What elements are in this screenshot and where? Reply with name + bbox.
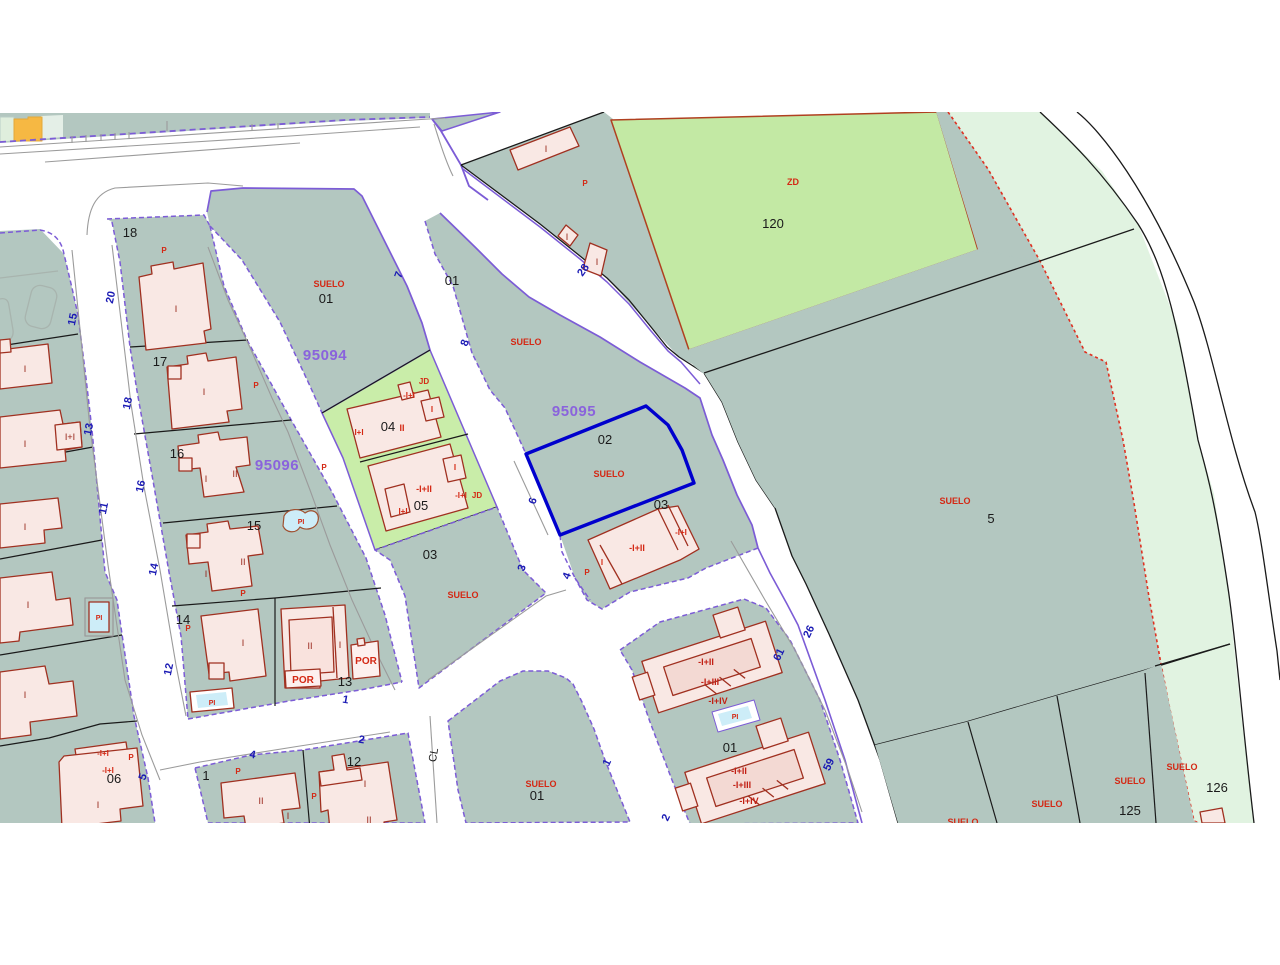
svg-text:01: 01: [445, 273, 459, 288]
svg-text:P: P: [185, 624, 191, 633]
svg-text:I: I: [454, 463, 456, 472]
svg-text:-I+I: -I+I: [102, 766, 114, 775]
svg-text:04: 04: [381, 419, 395, 434]
svg-text:03: 03: [654, 497, 668, 512]
svg-text:POR: POR: [355, 656, 377, 667]
svg-text:P: P: [161, 246, 167, 255]
svg-text:I: I: [24, 364, 27, 374]
svg-text:SUELO: SUELO: [1031, 799, 1062, 809]
svg-text:02: 02: [598, 432, 612, 447]
svg-text:-I+IV: -I+IV: [739, 796, 758, 806]
svg-text:SUELO: SUELO: [313, 279, 344, 289]
svg-text:P: P: [582, 179, 588, 188]
svg-text:PI: PI: [209, 700, 216, 707]
svg-text:P: P: [253, 381, 259, 390]
svg-text:I: I: [24, 690, 27, 700]
svg-text:13: 13: [338, 674, 352, 689]
svg-text:I: I: [97, 800, 100, 810]
svg-text:PI: PI: [298, 519, 305, 526]
svg-text:03: 03: [423, 547, 437, 562]
svg-text:120: 120: [762, 216, 784, 231]
svg-text:I: I: [287, 811, 290, 821]
svg-text:17: 17: [153, 354, 167, 369]
svg-text:-I+II: -I+II: [731, 766, 747, 776]
svg-text:II: II: [399, 423, 404, 433]
svg-text:-I+IV: -I+IV: [708, 696, 727, 706]
svg-text:12: 12: [347, 754, 361, 769]
svg-text:11: 11: [97, 501, 111, 515]
svg-text:P: P: [128, 753, 134, 762]
svg-text:SUELO: SUELO: [1114, 776, 1145, 786]
svg-text:-I+I: -I+I: [675, 528, 687, 537]
svg-text:95096: 95096: [255, 457, 299, 474]
svg-text:JD: JD: [472, 491, 482, 500]
svg-text:I: I: [24, 439, 27, 449]
svg-text:-I+III: -I+III: [733, 780, 751, 790]
svg-text:1: 1: [202, 768, 209, 783]
svg-text:12: 12: [162, 662, 176, 676]
svg-text:5: 5: [987, 511, 994, 526]
svg-text:16: 16: [170, 446, 184, 461]
svg-text:01: 01: [530, 788, 544, 803]
svg-text:I: I: [545, 144, 548, 154]
svg-text:18: 18: [121, 396, 135, 410]
svg-text:SUELO: SUELO: [510, 337, 541, 347]
svg-text:I: I: [175, 304, 178, 314]
svg-text:I+I: I+I: [354, 428, 363, 437]
svg-text:I: I: [596, 257, 599, 267]
svg-text:II: II: [232, 469, 237, 479]
svg-text:I: I: [205, 569, 208, 579]
svg-text:I: I: [24, 522, 27, 532]
svg-text:I: I: [431, 405, 433, 414]
svg-text:125: 125: [1119, 803, 1141, 818]
svg-text:I+I: I+I: [398, 507, 407, 516]
svg-text:18: 18: [123, 225, 137, 240]
svg-text:-I+I: -I+I: [455, 491, 467, 500]
svg-text:95094: 95094: [303, 347, 347, 364]
svg-text:01: 01: [723, 740, 737, 755]
svg-text:05: 05: [414, 498, 428, 513]
svg-text:01: 01: [319, 291, 333, 306]
svg-text:95095: 95095: [552, 403, 596, 420]
svg-text:P: P: [584, 568, 590, 577]
svg-text:PI: PI: [732, 714, 739, 721]
svg-text:SUELO: SUELO: [1166, 762, 1197, 772]
svg-text:I: I: [339, 640, 342, 650]
svg-text:I: I: [566, 232, 569, 242]
svg-text:15: 15: [66, 312, 80, 326]
svg-text:PI: PI: [96, 615, 103, 622]
svg-text:CL: CL: [427, 747, 441, 763]
svg-text:I: I: [601, 558, 603, 567]
svg-text:JD: JD: [419, 377, 429, 386]
svg-text:I: I: [364, 779, 367, 789]
svg-text:P: P: [240, 589, 246, 598]
svg-text:II: II: [307, 641, 312, 651]
svg-text:I: I: [27, 600, 30, 610]
svg-text:P: P: [235, 767, 241, 776]
svg-text:-I+I: -I+I: [97, 749, 109, 758]
svg-text:SUELO: SUELO: [593, 469, 624, 479]
svg-text:I: I: [242, 638, 245, 648]
svg-text:126: 126: [1206, 780, 1228, 795]
svg-text:II: II: [258, 796, 263, 806]
svg-text:I+I: I+I: [65, 432, 75, 442]
svg-text:POR: POR: [292, 675, 314, 686]
svg-text:-I+II: -I+II: [698, 657, 714, 667]
svg-text:SUELO: SUELO: [447, 590, 478, 600]
svg-text:13: 13: [82, 422, 96, 436]
svg-text:I: I: [205, 474, 208, 484]
svg-text:P: P: [311, 792, 317, 801]
svg-text:-I+III: -I+III: [701, 677, 719, 687]
svg-text:II: II: [240, 557, 245, 567]
svg-text:I: I: [203, 387, 206, 397]
svg-text:SUELO: SUELO: [939, 496, 970, 506]
svg-text:15: 15: [247, 518, 261, 533]
svg-text:16: 16: [134, 479, 148, 493]
svg-text:20: 20: [104, 290, 118, 304]
svg-text:P: P: [321, 463, 327, 472]
svg-text:-I+I: -I+I: [403, 391, 415, 400]
svg-text:ZD: ZD: [787, 177, 799, 187]
svg-text:-I+II: -I+II: [629, 543, 645, 553]
svg-text:-I+II: -I+II: [416, 484, 432, 494]
